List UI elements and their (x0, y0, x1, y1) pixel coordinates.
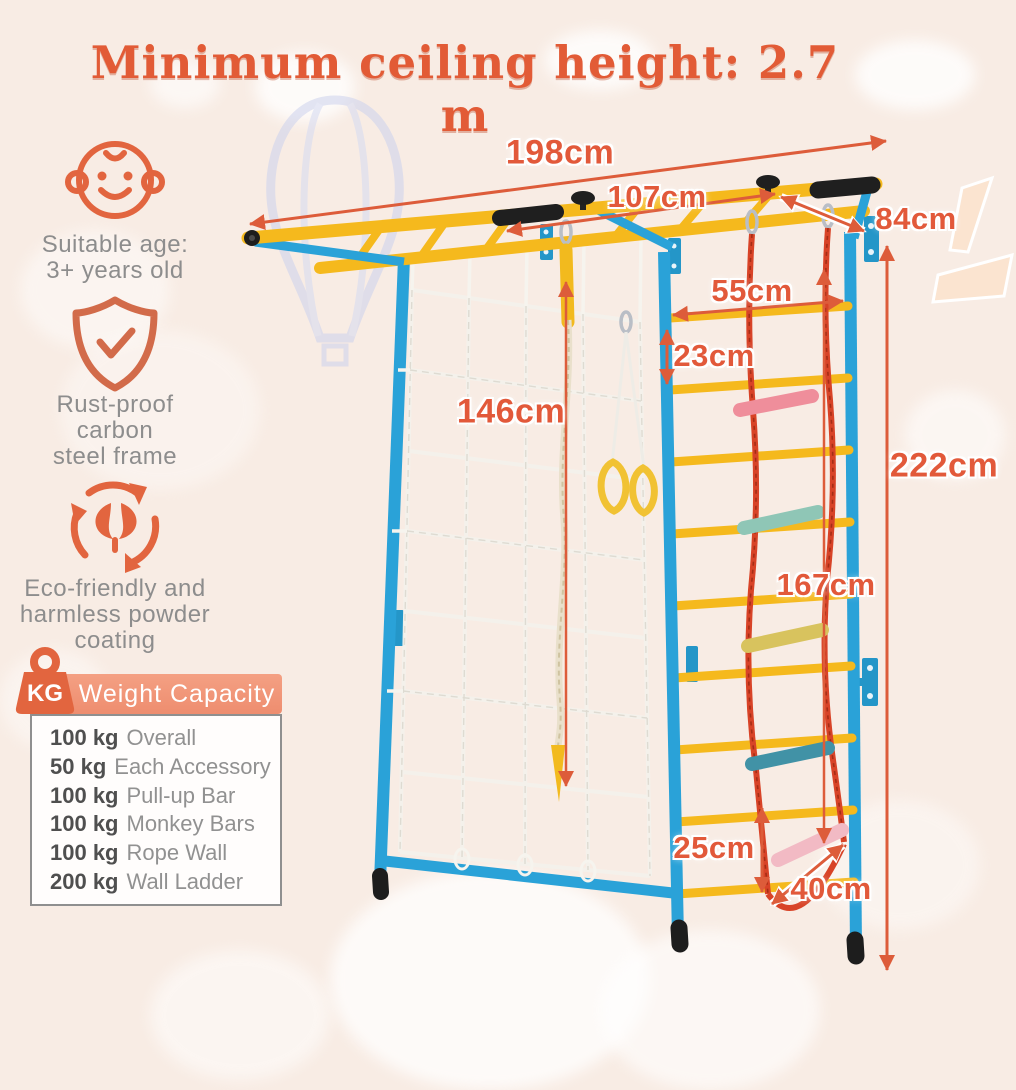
dimension-label-monkey-bar-span: 107cm (607, 179, 706, 215)
feature-suitable-age: Suitable age: 3+ years old (25, 136, 205, 284)
capacity-label: Rope Wall (127, 840, 228, 866)
capacity-label: Wall Ladder (127, 869, 244, 895)
kg-weight-icon: KG (12, 646, 78, 716)
weight-capacity-row: 200 kgWall Ladder (50, 869, 274, 895)
spark-decoration (933, 178, 1012, 302)
climbing-net (387, 235, 650, 881)
weight-capacity-row: 100 kgMonkey Bars (50, 811, 274, 837)
capacity-value: 200 kg (50, 869, 119, 895)
dimension-label-rope-ladder-length: 167cm (776, 567, 875, 603)
feature-text-line: steel frame (25, 444, 205, 470)
capacity-label: Monkey Bars (127, 811, 255, 837)
dimension-label-total-height: 222cm (890, 447, 998, 486)
kg-icon-label: KG (27, 680, 63, 707)
feature-text-line: carbon (25, 418, 205, 444)
eco-recycle-icon (63, 478, 167, 576)
dimension-label-climbing-rope: 146cm (457, 393, 565, 432)
dimension-label-ladder-width: 55cm (711, 273, 792, 309)
shield-check-icon (69, 296, 161, 392)
climbing-net-frame (376, 258, 682, 894)
feature-rust-proof: Rust-proof carbon steel frame (25, 296, 205, 470)
dimension-label-depth: 84cm (875, 201, 956, 237)
weight-capacity-row: 100 kgPull-up Bar (50, 783, 274, 809)
feature-text-line: Rust-proof (25, 392, 205, 418)
feature-eco-friendly: Eco-friendly and harmless powder coating (12, 478, 218, 654)
baby-icon (60, 136, 170, 232)
dimension-label-total-width: 198cm (506, 134, 614, 173)
dimension-label-rung-gap: 23cm (673, 338, 754, 374)
gym-rings (601, 312, 654, 513)
weight-capacity-list: 100 kgOverall 50 kgEach Accessory 100 kg… (30, 714, 282, 906)
capacity-value: 100 kg (50, 725, 119, 751)
feature-text-line: Eco-friendly and (12, 576, 218, 602)
feature-text-line: 3+ years old (25, 258, 205, 284)
capacity-value: 100 kg (50, 783, 119, 809)
capacity-value: 100 kg (50, 811, 119, 837)
page: { "title": "Minimum ceiling height: 2.7 … (0, 0, 1016, 1016)
weight-capacity-row: 100 kgOverall (50, 725, 274, 751)
dimension-label-bottom-rung-gap: 25cm (673, 830, 754, 866)
capacity-value: 50 kg (50, 754, 106, 780)
weight-capacity-row: 50 kgEach Accessory (50, 754, 274, 780)
capacity-value: 100 kg (50, 840, 119, 866)
dimension-label-rope-ladder-width: 40cm (790, 871, 871, 907)
feature-text-line: harmless powder (12, 602, 218, 628)
capacity-label: Overall (127, 725, 197, 751)
feature-text-line: Suitable age: (25, 232, 205, 258)
capacity-label: Each Accessory (114, 754, 271, 780)
weight-capacity-row: 100 kgRope Wall (50, 840, 274, 866)
capacity-label: Pull-up Bar (127, 783, 236, 809)
